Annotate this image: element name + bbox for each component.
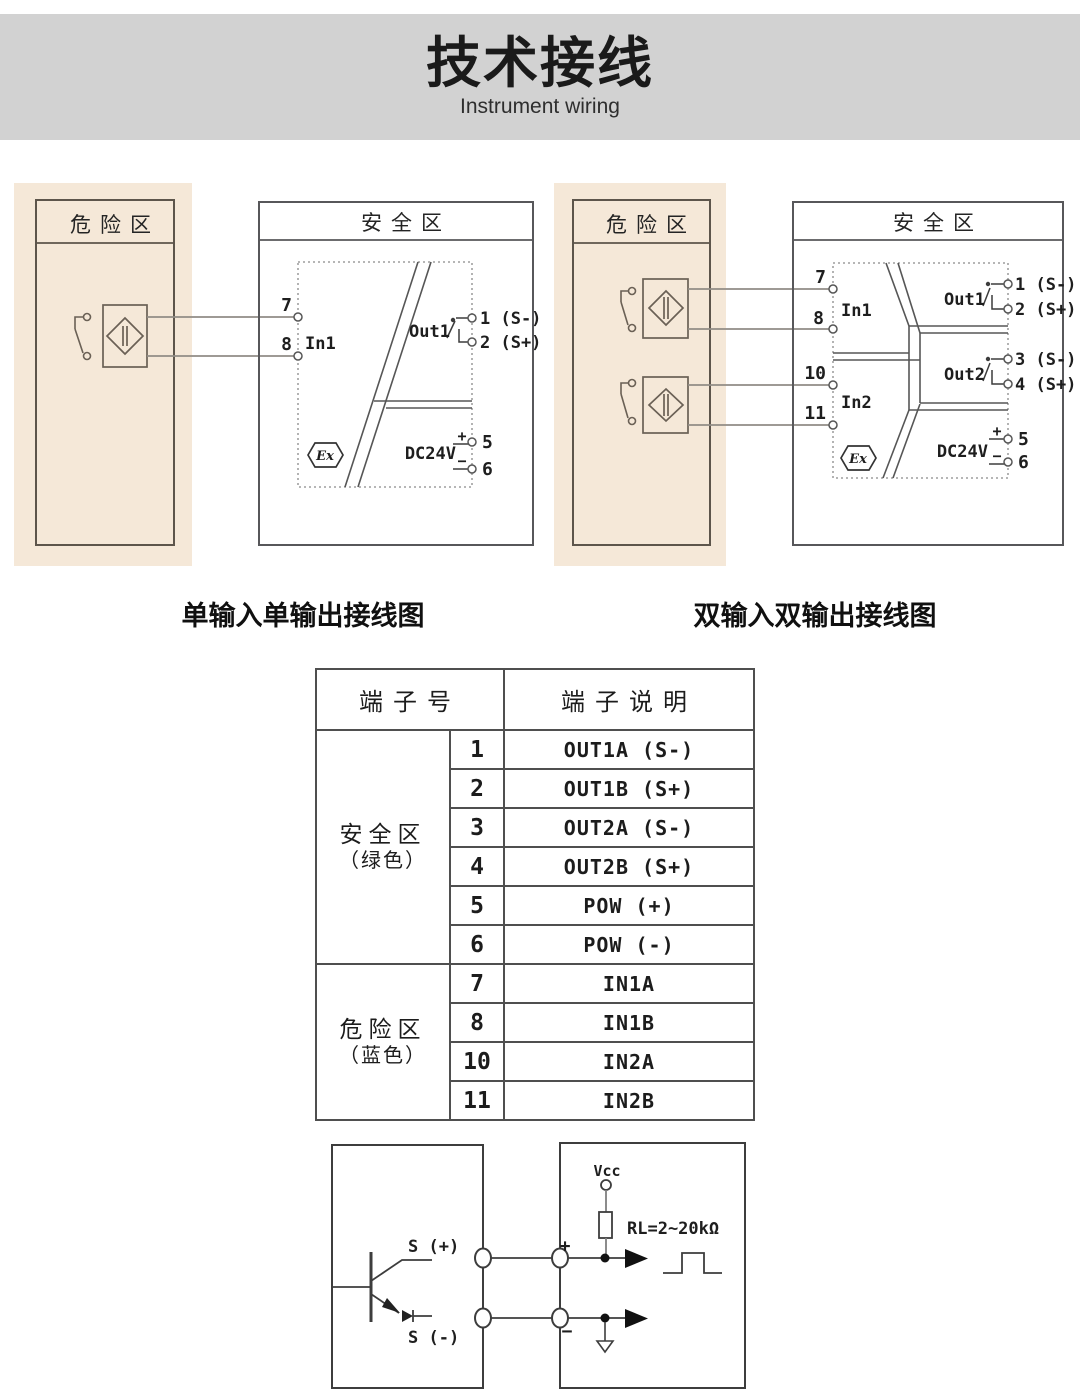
load-resistor-icon <box>599 1212 612 1238</box>
dual-io-diagram: 危险区 <box>554 183 1076 566</box>
terminal-2-label: 2 (S+) <box>480 333 541 353</box>
polarity-minus: − <box>992 447 1001 465</box>
dc24v-label: DC24V <box>937 442 988 462</box>
terminal-no: 2 <box>450 769 504 808</box>
terminal-circle-2 <box>468 338 476 346</box>
hazard-zone-background <box>554 183 726 566</box>
terminal-circle-5 <box>468 438 476 446</box>
terminal-desc: POW (+) <box>504 886 754 925</box>
in1-label: In1 <box>841 301 872 321</box>
caption-dual-io: 双输入双输出接线图 <box>655 594 975 633</box>
terminal-circle-1 <box>1004 280 1012 288</box>
terminal-no: 5 <box>450 886 504 925</box>
terminal-table: 端子号 端子说明 安全区 （绿色） 1 OUT1A (S-) 2OUT1B (S… <box>315 668 755 1121</box>
polarity-plus: + <box>992 422 1001 440</box>
output-circuit: S (+) S (-) Vcc RL=2~20kΩ + − <box>332 1143 745 1388</box>
col-header-terminal-desc: 端子说明 <box>504 669 754 730</box>
pulse-waveform-icon <box>663 1253 722 1273</box>
terminal-circle-7 <box>829 285 837 293</box>
ground-icon <box>597 1341 613 1352</box>
polarity-plus: + <box>457 427 466 445</box>
out2-contact-icon <box>983 357 1004 384</box>
hazard-zone-label: 危险区 <box>606 214 696 237</box>
terminal-no: 6 <box>450 925 504 964</box>
terminal-circle-4 <box>1004 380 1012 388</box>
transistor-icon <box>332 1252 432 1322</box>
terminal-7-label: 7 <box>281 295 292 316</box>
col-header-terminal-no: 端子号 <box>316 669 504 730</box>
terminal-circle-11 <box>829 421 837 429</box>
terminal-3-label: 3 (S-) <box>1015 350 1076 370</box>
terminal-circle-8 <box>829 325 837 333</box>
load-resistor-label: RL=2~20kΩ <box>627 1219 719 1239</box>
terminal-desc: IN1B <box>504 1003 754 1042</box>
dc24v-label: DC24V <box>405 444 456 464</box>
terminal-desc: IN1A <box>504 964 754 1003</box>
in2-label: In2 <box>841 393 872 413</box>
load-side-box <box>560 1143 745 1388</box>
out1-contact-icon <box>447 318 468 342</box>
terminal-circle-7 <box>294 313 302 321</box>
terminal-no: 3 <box>450 808 504 847</box>
svg-text:Ex: Ex <box>315 449 334 464</box>
terminal-8-label: 8 <box>813 308 824 329</box>
out1-contact-icon <box>983 282 1004 309</box>
terminal-no: 1 <box>450 730 504 769</box>
terminal-6-label: 6 <box>1018 452 1029 473</box>
table-header-row: 端子号 端子说明 <box>316 669 754 730</box>
terminal-circle-8 <box>294 352 302 360</box>
s-plus-label: S (+) <box>408 1237 459 1257</box>
terminal-circle-2 <box>1004 305 1012 313</box>
hazard-zone-background <box>14 183 192 566</box>
terminal-1-label: 1 (S-) <box>480 309 541 329</box>
zone-cell-hazard: 危险区 （蓝色） <box>316 964 450 1120</box>
terminal-no: 4 <box>450 847 504 886</box>
ex-icon: Ex <box>841 446 876 470</box>
terminal-8-label: 8 <box>281 334 292 355</box>
terminal-6-label: 6 <box>482 459 493 480</box>
polarity-minus: − <box>457 452 466 470</box>
out1-label: Out1 <box>944 290 985 310</box>
terminal-4-label: 4 (S+) <box>1015 375 1076 395</box>
terminal-5-label: 5 <box>1018 429 1029 450</box>
zone-safe-color: （绿色） <box>317 849 449 873</box>
terminal-11-label: 11 <box>804 403 826 424</box>
terminal-2-label: 2 (S+) <box>1015 300 1076 320</box>
single-io-diagram: 危险区 安全区 7 8 <box>14 183 541 566</box>
sensor-side-box <box>332 1145 483 1388</box>
terminal-no: 7 <box>450 964 504 1003</box>
table-row: 安全区 （绿色） 1 OUT1A (S-) <box>316 730 754 769</box>
vcc-label: Vcc <box>593 1162 620 1180</box>
terminal-no: 10 <box>450 1042 504 1081</box>
terminal-circle-6 <box>1004 458 1012 466</box>
terminal-desc: OUT2A (S-) <box>504 808 754 847</box>
terminal-circle-5 <box>1004 435 1012 443</box>
plus-mark: + <box>560 1236 571 1257</box>
minus-mark: − <box>562 1321 573 1342</box>
zone-hazard-name: 危险区 <box>317 1016 449 1044</box>
safe-zone-label: 安全区 <box>893 212 983 235</box>
zone-hazard-color: （蓝色） <box>317 1044 449 1068</box>
terminal-desc: IN2A <box>504 1042 754 1081</box>
safe-zone-label: 安全区 <box>361 212 451 235</box>
terminal-10-label: 10 <box>804 363 826 384</box>
hazard-zone-label: 危险区 <box>70 214 160 237</box>
terminal-1-label: 1 (S-) <box>1015 275 1076 295</box>
page: 技术接线 Instrument wiring 危险区 安全区 <box>0 0 1080 1400</box>
terminal-ellipses <box>475 1249 568 1328</box>
terminal-no: 11 <box>450 1081 504 1120</box>
terminal-no: 8 <box>450 1003 504 1042</box>
terminal-desc: OUT1B (S+) <box>504 769 754 808</box>
vcc-terminal <box>601 1180 611 1190</box>
terminal-desc: POW (-) <box>504 925 754 964</box>
terminal-circle-1 <box>468 314 476 322</box>
terminal-circle-10 <box>829 381 837 389</box>
out2-label: Out2 <box>944 365 985 385</box>
s-minus-label: S (-) <box>408 1328 459 1348</box>
terminal-5-label: 5 <box>482 432 493 453</box>
terminal-circle-6 <box>468 465 476 473</box>
table-row: 危险区 （蓝色） 7 IN1A <box>316 964 754 1003</box>
terminal-desc: IN2B <box>504 1081 754 1120</box>
safe-zone-panel <box>793 202 1063 545</box>
safe-zone-panel <box>259 202 533 545</box>
caption-single-io: 单输入单输出接线图 <box>143 594 463 633</box>
in1-label: In1 <box>305 334 336 354</box>
zone-safe-name: 安全区 <box>317 821 449 849</box>
terminal-desc: OUT2B (S+) <box>504 847 754 886</box>
terminal-desc: OUT1A (S-) <box>504 730 754 769</box>
ex-icon: Ex <box>308 443 343 467</box>
junction-dot-plus <box>601 1254 610 1263</box>
terminal-circle-3 <box>1004 355 1012 363</box>
arrow-plus <box>625 1249 648 1268</box>
arrow-minus <box>625 1309 648 1328</box>
zone-cell-safe: 安全区 （绿色） <box>316 730 450 964</box>
junction-dot-minus <box>601 1314 610 1323</box>
terminal-7-label: 7 <box>815 267 826 288</box>
out1-label: Out1 <box>409 322 450 342</box>
svg-text:Ex: Ex <box>848 452 867 467</box>
